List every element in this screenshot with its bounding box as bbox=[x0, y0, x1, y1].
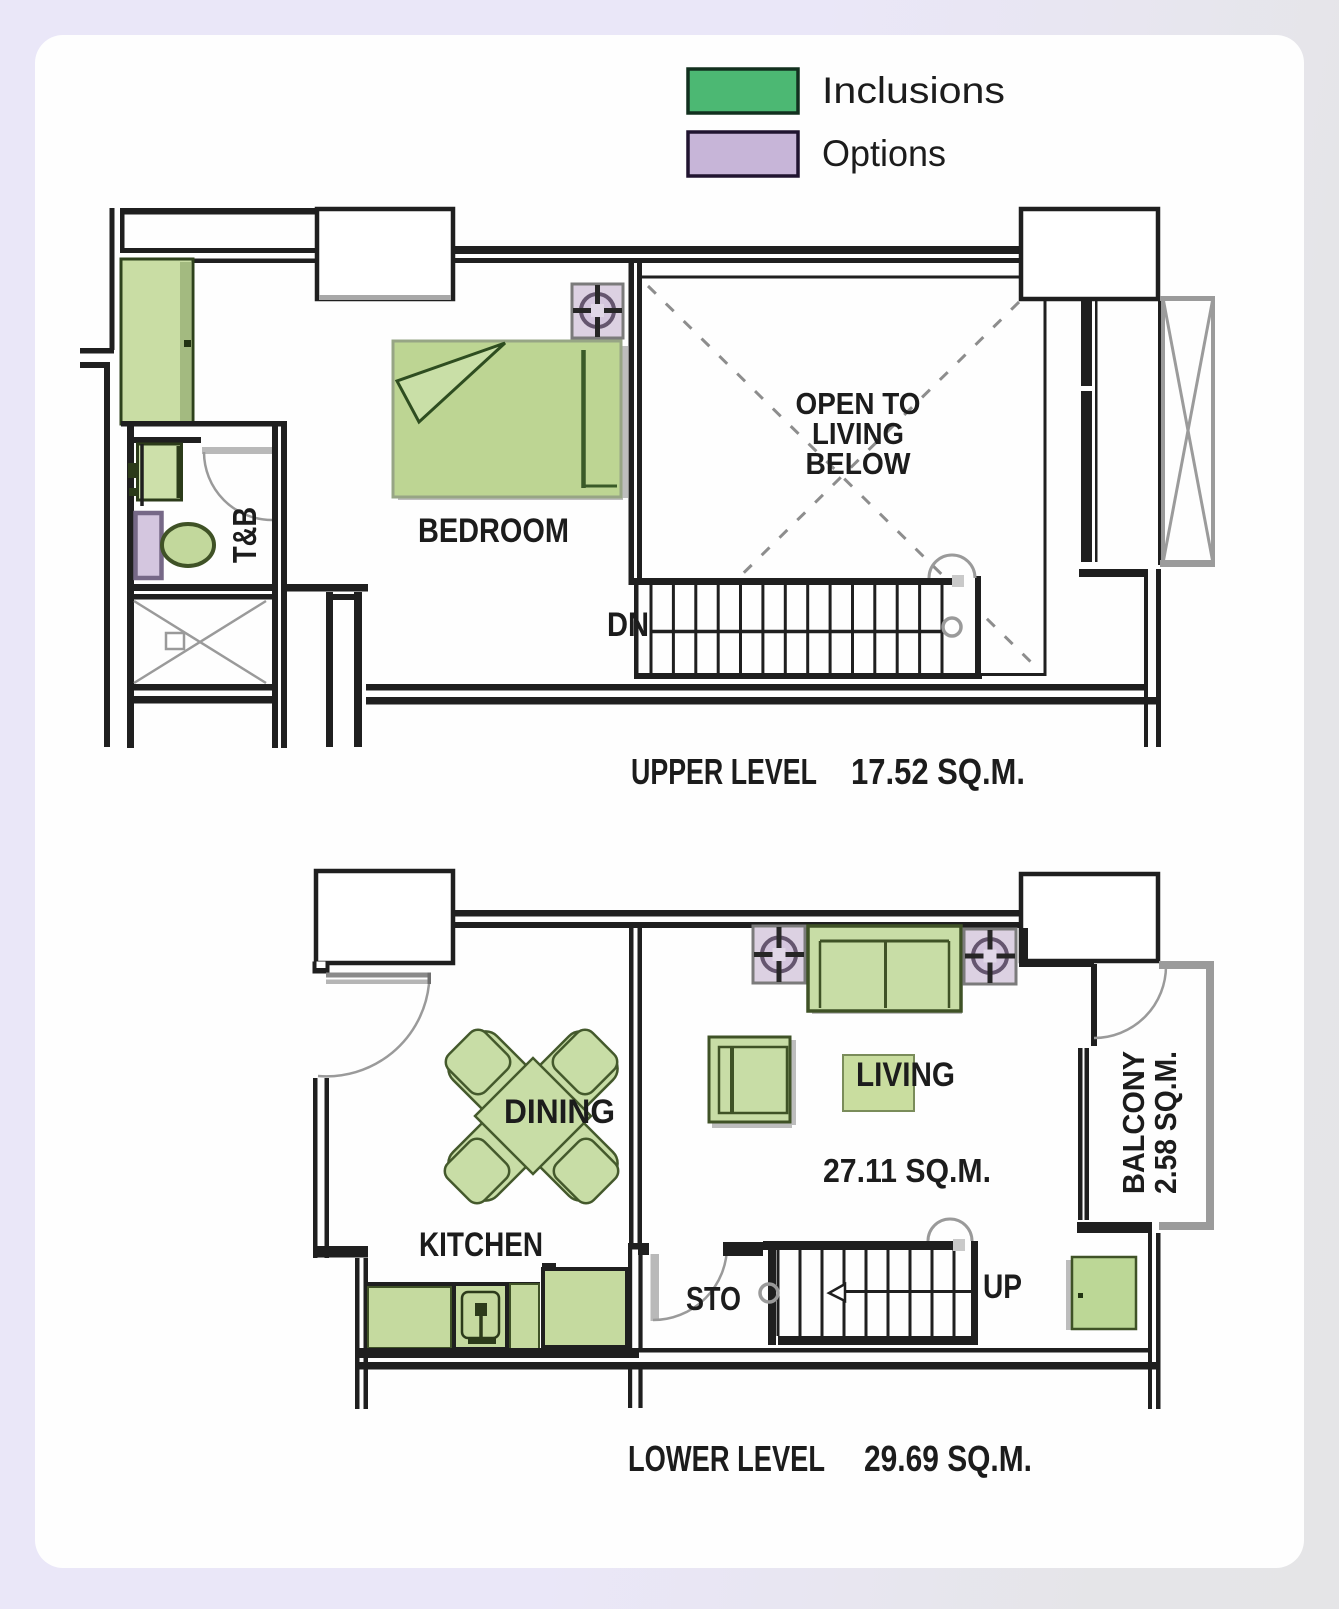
svg-text:DINING: DINING bbox=[504, 1093, 615, 1131]
svg-text:LOWER LEVEL: LOWER LEVEL bbox=[628, 1438, 825, 1479]
svg-text:STO: STO bbox=[686, 1280, 741, 1317]
svg-text:T&B: T&B bbox=[226, 507, 263, 563]
svg-text:Inclusions: Inclusions bbox=[822, 70, 1005, 111]
svg-text:LIVING: LIVING bbox=[856, 1056, 955, 1094]
svg-text:UP: UP bbox=[983, 1268, 1022, 1306]
svg-text:2.58 SQ.M.: 2.58 SQ.M. bbox=[1148, 1051, 1183, 1194]
svg-text:BEDROOM: BEDROOM bbox=[418, 512, 569, 550]
svg-text:17.52 SQ.M.: 17.52 SQ.M. bbox=[851, 751, 1025, 792]
svg-text:KITCHEN: KITCHEN bbox=[419, 1226, 543, 1264]
svg-text:BELOW: BELOW bbox=[806, 446, 912, 481]
svg-text:UPPER LEVEL: UPPER LEVEL bbox=[631, 751, 817, 792]
svg-text:Options: Options bbox=[822, 133, 946, 174]
svg-text:29.69 SQ.M.: 29.69 SQ.M. bbox=[864, 1438, 1032, 1479]
svg-text:BALCONY: BALCONY bbox=[1116, 1051, 1151, 1194]
svg-text:27.11 SQ.M.: 27.11 SQ.M. bbox=[823, 1152, 991, 1189]
svg-text:DN: DN bbox=[607, 606, 649, 644]
